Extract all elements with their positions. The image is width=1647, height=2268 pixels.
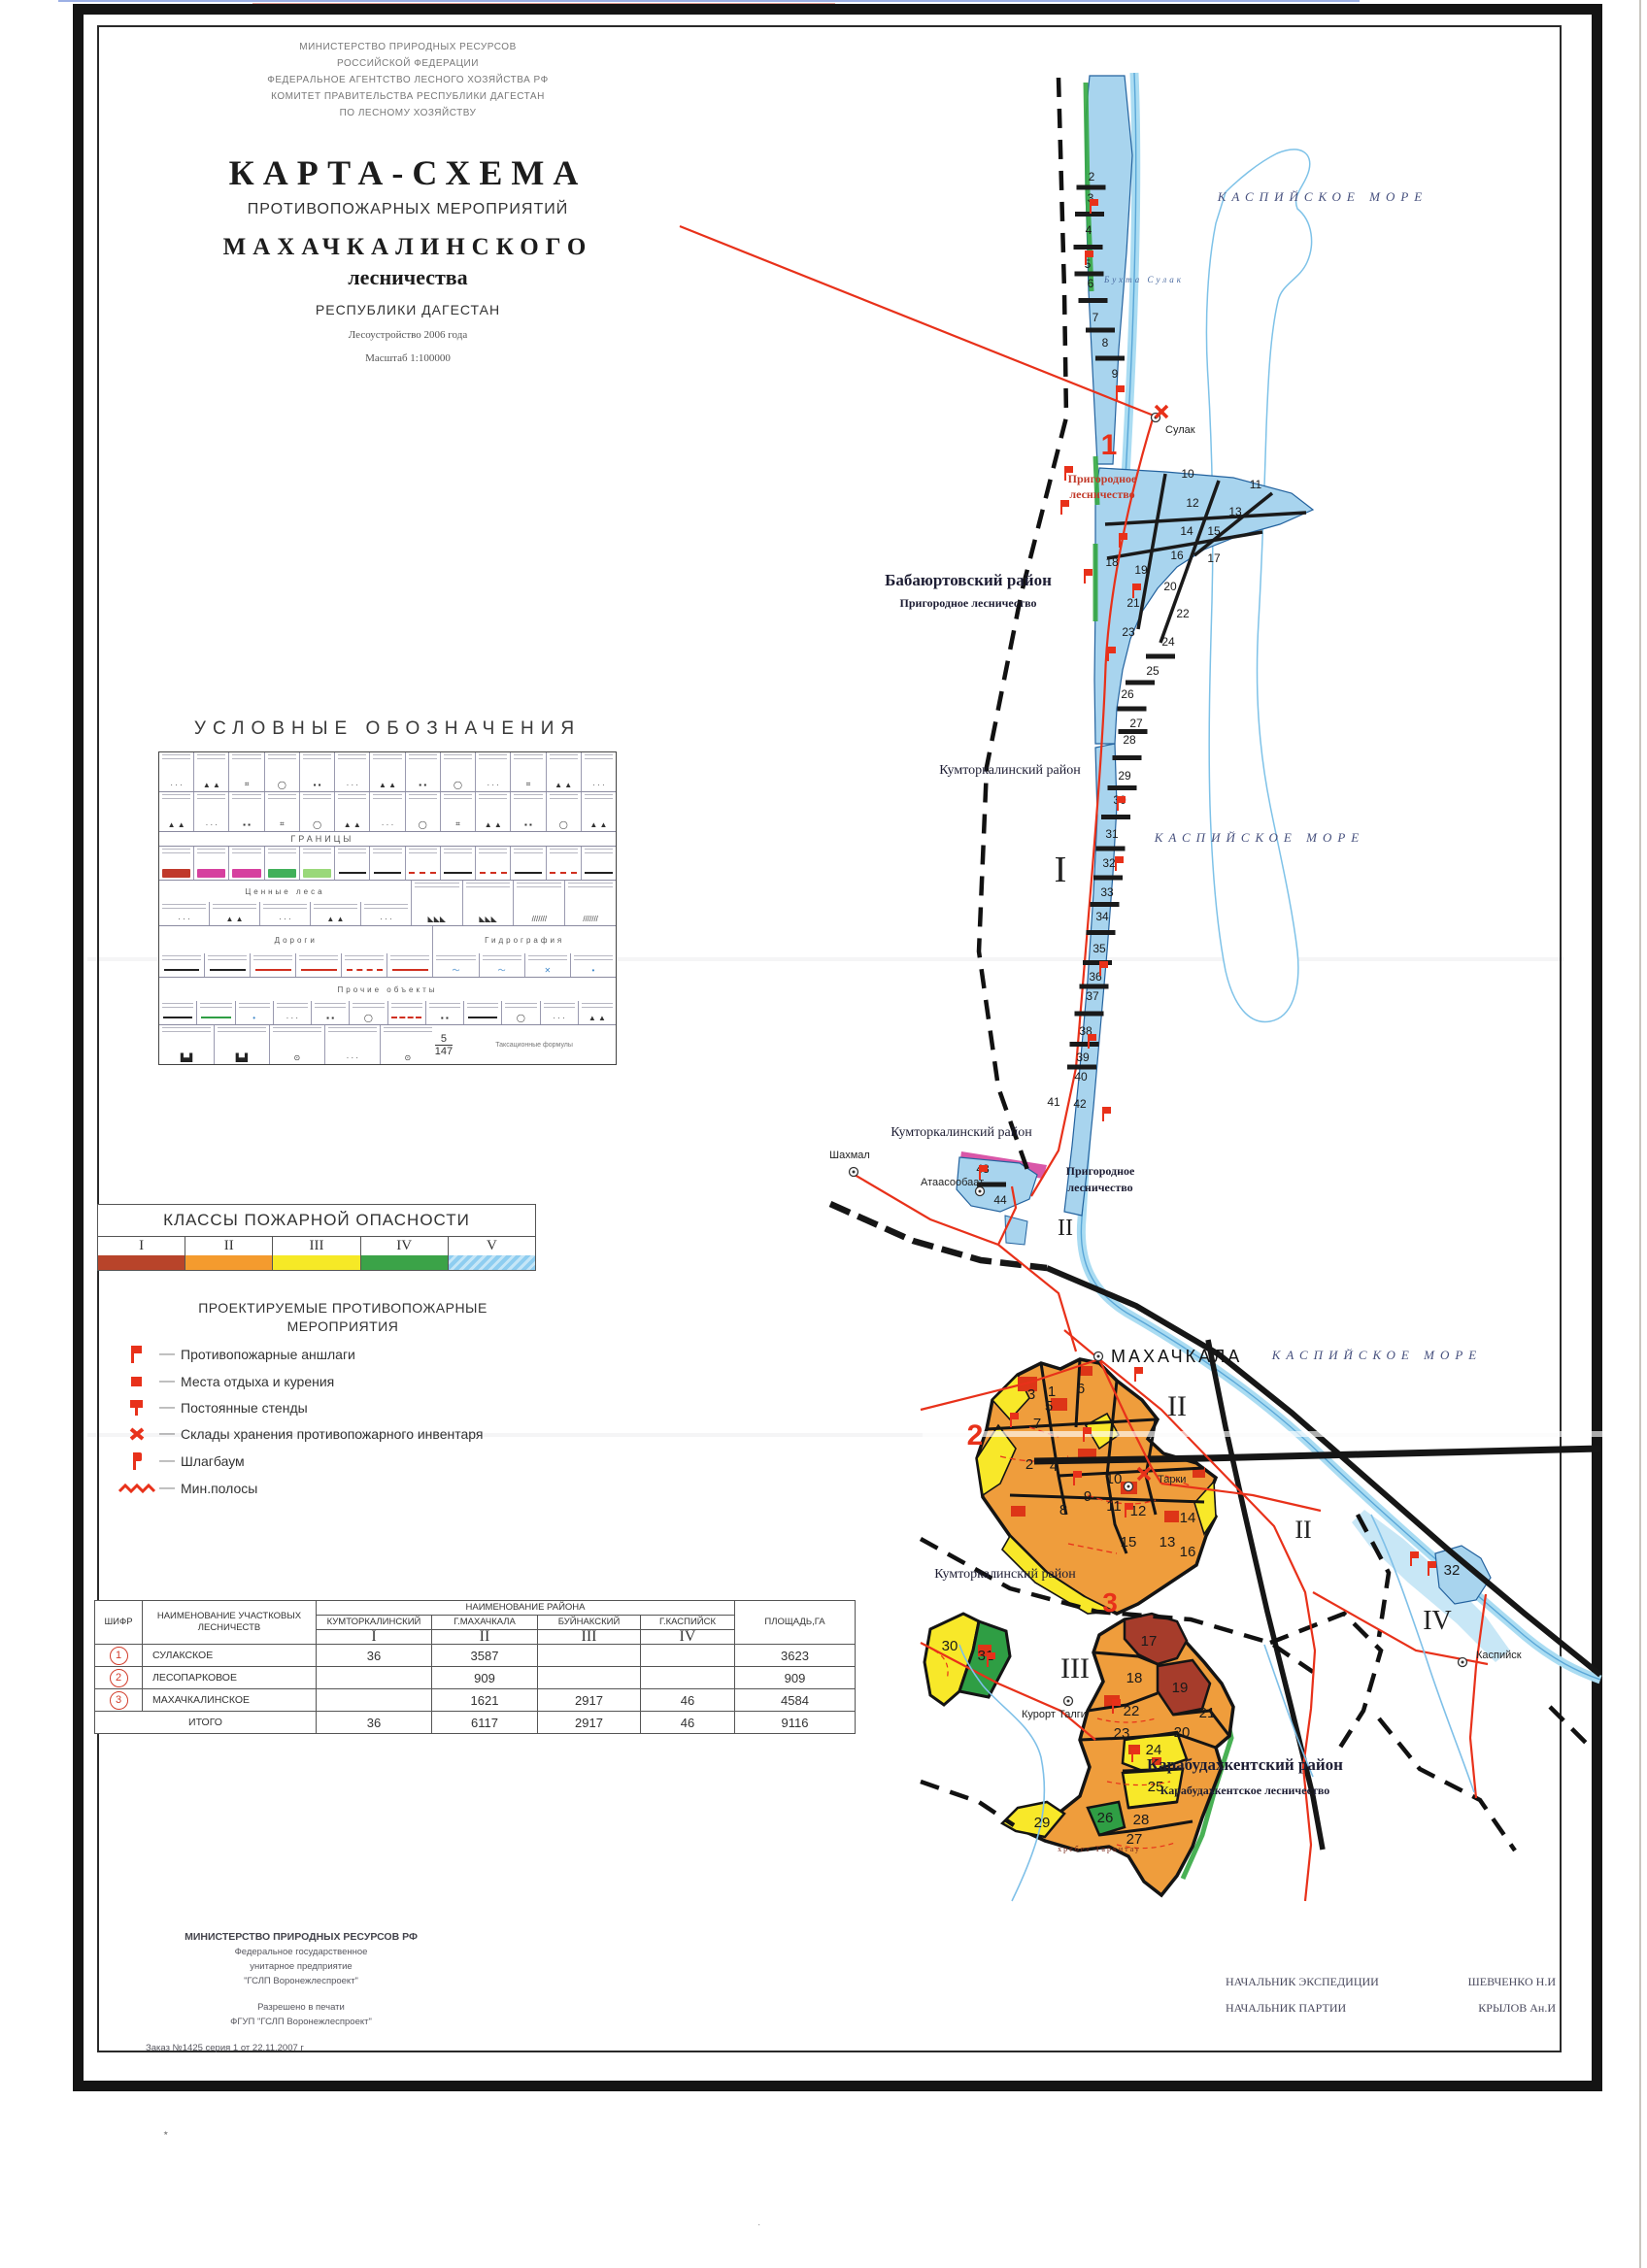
signature-role: НАЧАЛЬНИК ПАРТИИ [1226,2001,1346,2016]
legend-cell [582,866,616,880]
value-cell: 36 [317,1645,432,1667]
legend-cell [162,904,206,912]
legend-cell [342,963,387,977]
legend-cell [387,963,432,977]
measure-item: — Мин.полосы [115,1480,571,1497]
legend-cell [159,963,204,977]
legend-cell [483,955,521,963]
legend-cell: ◯ [405,792,440,831]
forestry-cell: СУЛАКСКОЕ [143,1645,317,1667]
legend-cell [268,849,296,856]
area-cell: 909 [735,1667,856,1689]
value-cell: 2917 [538,1689,641,1712]
legend-cell [466,883,511,890]
legend-cell [197,849,225,856]
measure-item: — Постоянные стенды [115,1399,571,1417]
dash: — [159,1480,175,1497]
legend-cell [387,1001,425,1024]
legend-cell [514,794,542,802]
dash: — [159,1346,175,1363]
legend-cell: · · · [370,817,404,831]
legend-cell: ◯ [349,1001,387,1024]
legend-cell: ▲ ▲ [335,817,369,831]
measure-label: Места отдыха и курения [181,1374,334,1389]
legend-cell: ▲ ▲ [578,1001,616,1024]
row-code: 1 [110,1647,128,1665]
table-row: 1 СУЛАКСКОЕ 36 3587 3623 [95,1645,856,1667]
legend-cell: ▲ ▲ [475,792,510,831]
forestry-word: лесничества [165,265,651,290]
measure-item: — Места отдыха и курения [115,1373,571,1390]
legend-cell: · · · [475,752,510,791]
col-shifr: ШИФР [95,1601,143,1645]
legend-cell: ◯ [300,817,334,831]
district-num: II [432,1630,538,1645]
legend-cell [505,1003,536,1011]
legend-cell: ▲ ▲ [210,912,259,925]
legend-cell [335,866,369,880]
dash: — [159,1425,175,1443]
fire-sign-icon [115,1345,159,1364]
legend-cell: ◣◣◣ [411,881,462,925]
legend-cell [338,849,366,856]
org-line: ФЕДЕРАЛЬНОЕ АГЕНТСТВО ЛЕСНОГО ХОЗЯЙСТВА … [165,72,651,88]
legend-cell [303,754,331,762]
legend-cell [550,849,578,856]
legend-cell: ◯ [350,1011,387,1024]
legend-cell [463,1001,501,1024]
legend-cell: ◣◣◣ [462,881,514,925]
imprint-line: Заказ №1425 серия 1 от 22.11.2007 г [146,2041,554,2055]
legend-cell [486,832,616,846]
measure-label: Постоянные стенды [181,1400,308,1416]
legend-cell: 〜 [479,953,524,977]
legend-cell: ⌗ [510,752,545,791]
legend-cell: ◯ [547,817,581,831]
measure-label: Шлагбаум [181,1453,245,1469]
legend-cell [369,847,404,880]
measure-item: — Противопожарные аншлаги [115,1345,571,1364]
legend-cell [373,849,401,856]
value-cell: 2917 [538,1712,641,1734]
legend-cell [213,904,256,912]
legend-cell [218,1027,266,1035]
legend-cell [208,955,247,963]
imprint-line: Федеральное государственное [146,1945,456,1959]
legend-cell [409,849,437,856]
legend-cell: ▙▟ [159,1051,214,1064]
legend-cell: ◯ [406,817,440,831]
legend-cell [546,847,581,880]
fire-class-swatch [273,1255,359,1270]
legend-cell: · · · [324,1025,380,1064]
legend-cell: ▙▟ [214,1025,269,1064]
legend-cell: Прочие объекты [159,978,616,1001]
legend-cell [159,953,204,977]
legend-cell [547,866,581,880]
scan-speck: · [757,2219,760,2230]
legend-cell: ▲ ▲ [370,778,404,791]
legend-cell [585,754,613,762]
title-block: МИНИСТЕРСТВО ПРИРОДНЫХ РЕСУРСОВ РОССИЙСК… [165,39,651,364]
legend-cell [303,869,331,878]
legend-cell: · · · [194,817,228,831]
fire-class-numeral: I [98,1237,185,1255]
legend-cell: Гидрография〜〜✕• [432,926,616,977]
legend-cell [409,754,437,762]
value-cell: 46 [641,1689,735,1712]
legend-cell [415,883,459,890]
legend-cell [196,1001,234,1024]
imprint-line: "ГСЛП Воронежлеспроект" [146,1974,456,1988]
area-cell: 3623 [735,1645,856,1667]
legend-cell [390,955,429,963]
legend-cell: 〜 [433,963,478,977]
legend-cell [268,794,296,802]
legend-cell [334,847,369,880]
area-cell: 4584 [735,1689,856,1712]
legend-cell: ◯ [546,792,581,831]
legend-cell [159,1001,196,1024]
republic-line: РЕСПУБЛИКИ ДАГЕСТАН [165,302,651,317]
map-subtitle: ПРОТИВОПОЖАРНЫХ МЕРОПРИЯТИЙ [165,201,651,218]
legend-cell [228,847,263,880]
legend-cell [232,849,260,856]
forestry-cell: ЛЕСОПАРКОВОЕ [143,1667,317,1689]
legend-cell [162,849,190,856]
legend-cell: ▲ ▲ [159,792,193,831]
col-district: НАИМЕНОВАНИЕ РАЙОНА [317,1601,735,1616]
legend-cell: ▪ ▪ [511,817,545,831]
legend-cell [373,754,401,762]
district-num: I [317,1630,432,1645]
legend-cell [197,1011,234,1024]
scan-speck: ٭ [163,2128,168,2139]
legend-cell [464,1011,501,1024]
legend-cell: · · · [335,778,369,791]
value-cell [538,1645,641,1667]
legend-cell: Таксационные формулы [453,1025,616,1064]
forestry-cell: МАХАЧКАЛИНСКОЕ [143,1689,317,1712]
legend-cell: ▲ ▲ [310,902,360,925]
fire-class-swatch [98,1255,185,1270]
legend-cell [303,794,331,802]
map-title: КАРТА-СХЕМА [165,152,651,193]
legend-cell [197,869,225,878]
stand-icon [115,1399,159,1417]
legend-cell: ▲ ▲ [334,792,369,831]
legend-cell: ▲ ▲ [311,912,360,925]
legend-cell [345,955,384,963]
legend-cell: ▪ ▪ [311,1001,349,1024]
fire-class-II: II [185,1237,272,1270]
legend-cell [273,1027,321,1035]
value-cell: 36 [317,1712,432,1734]
legend-cell [299,847,334,880]
legend-cell: ▪ ▪ [229,817,263,831]
fire-class-numeral: III [273,1237,359,1255]
legend-cell: 〜 [480,963,524,977]
value-cell [641,1645,735,1667]
value-cell [641,1667,735,1689]
legend-cell [370,866,404,880]
legend-cell [475,847,510,880]
legend-cell [296,963,341,977]
taxation-sample: 5147 [435,1025,453,1064]
district-num: IV [641,1630,735,1645]
legend-cell: · · · [360,902,411,925]
legend-cell: ▲ ▲ [159,817,193,831]
legend-cell: ▪ ▪ [312,1011,349,1024]
legend-cell: ◯ [441,778,475,791]
legend-cell [479,754,507,762]
legend-cell [440,847,475,880]
legend-cell: Ценные леса [159,881,411,902]
legend-cell: ◯ [502,1011,539,1024]
scan-edge-line [58,0,1360,2]
legend-title: УСЛОВНЫЕ ОБОЗНАЧЕНИЯ [158,718,617,740]
org-line: КОМИТЕТ ПРАВИТЕЛЬСТВА РЕСПУБЛИКИ ДАГЕСТА… [165,88,651,105]
legend-cell [581,847,616,880]
legend-cell: ⌗ [228,752,263,791]
legend-cell: · · · [581,752,616,791]
legend-cell: · · · [334,752,369,791]
legend-cell [364,904,408,912]
legend-cell [514,754,542,762]
legend-cell: ▲ ▲ [369,752,404,791]
legend-cell: ◣◣◣ [412,912,462,925]
legend-cell: · · · [193,792,228,831]
legend-cell: ▲ ▲ [476,817,510,831]
legend-cell [517,883,561,890]
legend-cell [476,866,510,880]
legend-cell: ▪ ▪ [425,1001,463,1024]
legend-cell [295,953,341,977]
legend-cell: • [235,1001,273,1024]
fire-class-swatch [185,1255,272,1270]
legend-cell [479,794,507,802]
value-cell: 909 [432,1667,538,1689]
legend-cell: ⊙ [380,1025,435,1064]
legend-cell [268,754,296,762]
legend-cell [264,847,299,880]
legend-cell: ⌗ [229,778,263,791]
legend-cell [388,1011,425,1024]
legend-cell [205,963,250,977]
legend-cell [159,1011,196,1024]
legend-cell [232,754,260,762]
legend-cell [328,1027,377,1035]
legend-cell [162,1027,211,1035]
legend-cell: · · · [361,912,411,925]
legend-cell [162,754,190,762]
fire-class-numeral: II [185,1237,272,1255]
map-sheet: МИНИСТЕРСТВО ПРИРОДНЫХ РЕСУРСОВ РОССИЙСК… [0,0,1647,2268]
legend-cell: Ценные леса· · ·▲ ▲· · ·▲ ▲· · · [159,881,411,925]
legend-cell: ▲ ▲ [581,792,616,831]
legend-cell [429,1003,460,1011]
imprint-line: ФГУП "ГСЛП Воронежлеспроект" [146,2015,456,2029]
col-area: ПЛОЩАДЬ,ГА [735,1601,856,1645]
legend-cell [299,955,338,963]
legend-cell: ⌗ [264,792,299,831]
legend-cell [232,869,260,878]
legend-cell [510,847,545,880]
legend-cell: • [571,963,616,977]
legend-cell: ▙▟ [215,1051,269,1064]
legend-cell [441,866,475,880]
signature-name: ШЕВЧЕНКО Н.И [1468,1975,1556,1989]
legend-cell: · · · [369,792,404,831]
legend-cell: · · · [259,902,310,925]
legend-cell: Дороги [159,926,432,977]
legend-cell: · · · [159,902,209,925]
legend-cell: ▲ ▲ [193,752,228,791]
legend-cell: · · · [159,912,209,925]
legend-cell: Прочие объекты•· · ·▪ ▪◯▪ ▪◯· · ·▲ ▲ [159,978,616,1024]
legend-cell [162,869,190,878]
legend-cell [303,849,331,856]
value-cell: 1621 [432,1689,538,1712]
value-cell: 46 [641,1712,735,1734]
legend-cell [550,754,578,762]
legend-cell [479,849,507,856]
legend-cell: ◯ [299,792,334,831]
org-line: МИНИСТЕРСТВО ПРИРОДНЫХ РЕСУРСОВ [165,39,651,55]
legend-cell [159,847,193,880]
legend-cell [444,794,472,802]
legend-cell: /////// [514,912,564,925]
area-cell: 9116 [735,1712,856,1734]
legend-cell [253,955,292,963]
legend-cell: · · · [476,778,510,791]
legend-cell: ◯ [440,752,475,791]
legend-cell [511,866,545,880]
barrier-icon [115,1451,159,1471]
fire-class-swatch [361,1255,448,1270]
value-cell [538,1667,641,1689]
org-line: ПО ЛЕСНОМУ ХОЗЯЙСТВУ [165,105,651,121]
legend-block: УСЛОВНЫЕ ОБОЗНАЧЕНИЯ · · ·▲ ▲⌗◯▪ ▪· · ·▲… [158,718,617,1065]
legend-cell: · · · [540,1001,578,1024]
scan-edge-line [1639,0,1641,2268]
value-cell [317,1667,432,1689]
legend-cell [353,1003,384,1011]
table-row: 3 МАХАЧКАЛИНСКОЕ 1621 2917 46 4584 [95,1689,856,1712]
legend-cell [528,955,567,963]
legend-cell: · · · [582,778,616,791]
legend-cell [406,866,440,880]
legend-cell [251,963,295,977]
legend-cell: 〜 [433,953,478,977]
row-code: 3 [110,1691,128,1710]
legend-cell: ✕ [524,953,570,977]
signature-role: НАЧАЛЬНИК ЭКСПЕДИЦИИ [1226,1975,1379,1989]
legend-cell [197,754,225,762]
legend-cell: ▪ ▪ [299,752,334,791]
measure-item: — Склады хранения противопожарного инвен… [115,1425,571,1443]
legend-cell: ⌗ [511,778,545,791]
legend-cell [162,1003,193,1011]
measure-label: Склады хранения противопожарного инвента… [181,1426,483,1442]
fire-class-III: III [272,1237,359,1270]
legend-cell: ▲ ▲ [582,817,616,831]
imprint-line: МИНИСТЕРСТВО ПРИРОДНЫХ РЕСУРСОВ РФ [146,1930,456,1945]
dash: — [159,1399,175,1417]
fire-classes-title: КЛАССЫ ПОЖАРНОЙ ОПАСНОСТИ [98,1205,535,1237]
org-line: РОССИЙСКОЙ ФЕДЕРАЦИИ [165,55,651,72]
dash: — [159,1452,175,1470]
legend-cell: ⊙ [270,1051,324,1064]
legend-cell: ▲ ▲ [209,902,259,925]
legend-cell: ◯ [265,778,299,791]
legend-cell [162,794,190,802]
legend-cell: ▙▟ [159,1025,214,1064]
legend-cell [204,953,250,977]
legend-cell: ▲ ▲ [194,778,228,791]
legend-cell [200,1003,231,1011]
legend-cell [341,953,387,977]
min-strip-icon [115,1482,159,1495]
legend-cell: ▲ ▲ [547,778,581,791]
legend-cell: /////// [564,881,616,925]
legend-cell: • [570,953,616,977]
legend-cell [436,955,475,963]
forestry-name: МАХАЧКАЛИНСКОГО [165,234,651,261]
fire-class-IV: IV [360,1237,448,1270]
fire-class-numeral: IV [361,1237,448,1255]
area-table: ШИФР НАИМЕНОВАНИЕ УЧАСТКОВЫХ ЛЕСНИЧЕСТВ … [94,1600,856,1734]
legend-cell: · · · [325,1051,380,1064]
legend-cell [193,847,228,880]
legend-cell: ◣◣◣ [463,912,514,925]
legend-cell: ▲ ▲ [579,1011,616,1024]
legend-cell [314,904,357,912]
legend-cell: ГРАНИЦЫ [159,832,486,846]
imprint-line: Разрешено в печати [146,2000,456,2015]
value-cell: 6117 [432,1712,538,1734]
legend-cell: · · · [260,912,310,925]
legend-cell [544,1003,575,1011]
legend-cell [444,754,472,762]
measure-item: — Шлагбаум [115,1451,571,1471]
fire-class-V: V [448,1237,535,1270]
legend-cell [197,794,225,802]
district-num: III [538,1630,641,1645]
value-cell: 3587 [432,1645,538,1667]
col-name: НАИМЕНОВАНИЕ УЧАСТКОВЫХ ЛЕСНИЧЕСТВ [143,1601,317,1645]
legend-cell [574,955,613,963]
legend-cell: ⊙ [269,1025,324,1064]
signature-name: КРЫЛОВ Ан.И [1478,2001,1556,2016]
legend-cell: ✕ [525,963,570,977]
legend-cell [268,869,296,878]
legend-cell [568,883,613,890]
value-cell [317,1689,432,1712]
legend-cell [162,955,201,963]
legend-cell: · · · [273,1001,311,1024]
table-total-row: ИТОГО 36 6117 2917 46 9116 [95,1712,856,1734]
legend-cell: ⌗ [441,817,475,831]
measures-title: ПРОЕКТИРУЕМЫЕ ПРОТИВОПОЖАРНЫЕ [115,1299,571,1317]
legend-cell: ⌗ [265,817,299,831]
legend-cell [338,794,366,802]
fire-classes-box: КЛАССЫ ПОЖАРНОЙ ОПАСНОСТИ IIIIIIIVV [97,1204,536,1271]
measures-title2: МЕРОПРИЯТИЯ [115,1317,571,1336]
legend-cell [391,1003,422,1011]
measure-label: Противопожарные аншлаги [181,1347,355,1362]
legend-cell: · · · [274,1011,311,1024]
